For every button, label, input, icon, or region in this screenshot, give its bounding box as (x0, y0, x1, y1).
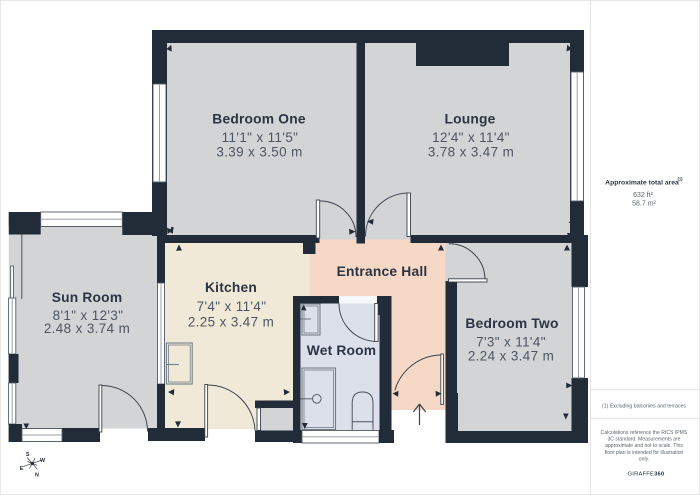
svg-text:2.48 x 3.74 m: 2.48 x 3.74 m (44, 321, 130, 336)
svg-text:2.24 x 3.47 m: 2.24 x 3.47 m (468, 349, 554, 364)
svg-text:11'1" x 11'5": 11'1" x 11'5" (222, 130, 299, 145)
svg-text:approximate and not to scale.: approximate and not to scale. This (605, 443, 683, 449)
svg-text:632 ft²: 632 ft² (633, 192, 654, 199)
svg-text:E: E (20, 466, 24, 472)
svg-text:7'3" x 11'4": 7'3" x 11'4" (476, 335, 546, 350)
svg-text:3.39 x 3.50 m: 3.39 x 3.50 m (216, 145, 302, 160)
svg-text:(1) Excluding balconies and te: (1) Excluding balconies and terraces (602, 404, 686, 410)
svg-text:7'4" x 11'4": 7'4" x 11'4" (197, 299, 267, 314)
svg-text:58.7 m²: 58.7 m² (632, 201, 656, 208)
svg-text:N: N (35, 473, 39, 479)
svg-text:Bedroom Two: Bedroom Two (465, 316, 558, 331)
svg-text:S: S (26, 452, 30, 458)
svg-text:(1): (1) (677, 177, 683, 182)
svg-text:2.25 x 3.47 m: 2.25 x 3.47 m (188, 315, 274, 330)
svg-text:Entrance Hall: Entrance Hall (337, 264, 428, 279)
svg-text:12'4" x 11'4": 12'4" x 11'4" (432, 130, 510, 145)
svg-text:3C standard. Measurements are: 3C standard. Measurements are (607, 437, 680, 443)
svg-text:Lounge: Lounge (444, 112, 495, 127)
svg-text:Bedroom One: Bedroom One (212, 112, 306, 127)
svg-text:Sun Room: Sun Room (52, 290, 123, 305)
svg-text:Approximate total area: Approximate total area (605, 180, 679, 187)
svg-text:Wet Room: Wet Room (307, 343, 377, 358)
svg-text:Calculations reference the RIC: Calculations reference the RICS IPMS (601, 430, 688, 436)
svg-text:3.78 x 3.47 m: 3.78 x 3.47 m (428, 145, 514, 160)
svg-text:floor plan is intended for ill: floor plan is intended for illustration (605, 450, 684, 456)
svg-text:GIRAFFE360: GIRAFFE360 (628, 472, 665, 478)
svg-text:Kitchen: Kitchen (205, 280, 257, 295)
svg-text:only.: only. (639, 456, 649, 462)
